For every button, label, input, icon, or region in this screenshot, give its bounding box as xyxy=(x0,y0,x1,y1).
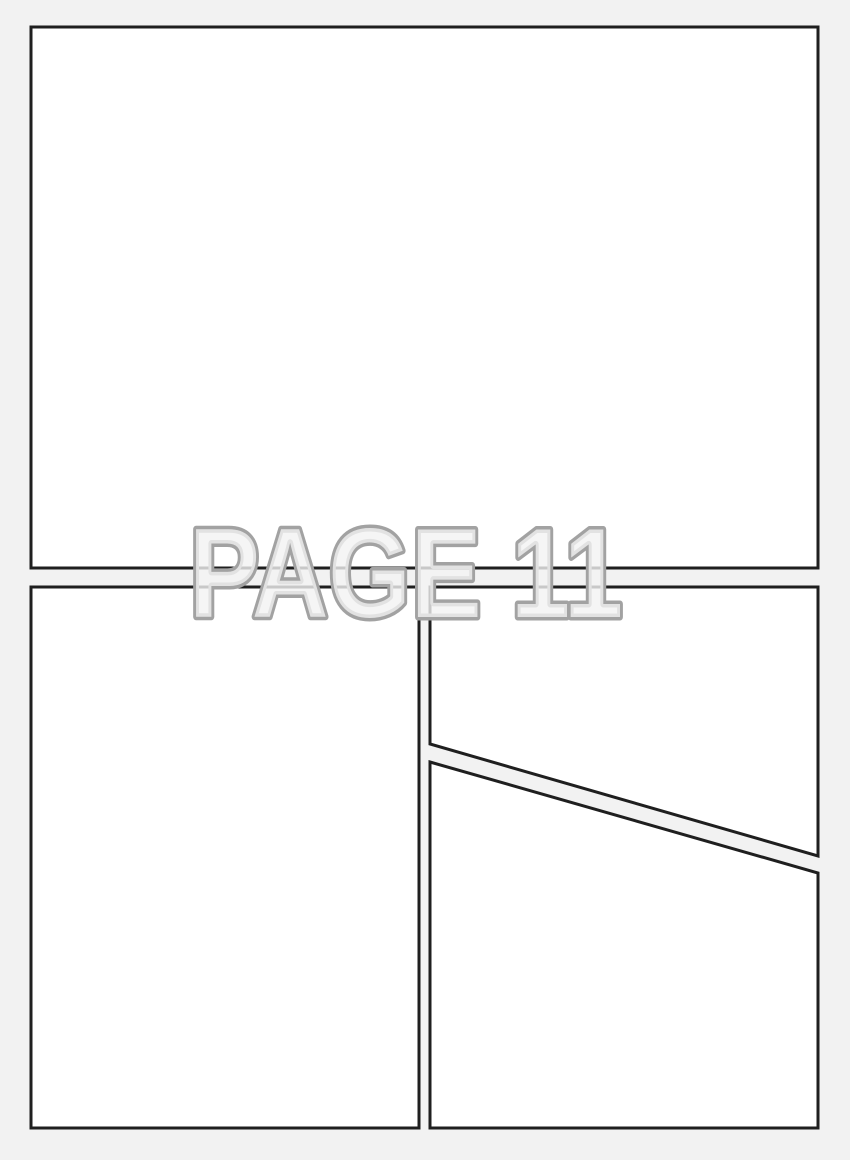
panel-bottom-left xyxy=(31,587,419,1128)
comic-page-template: PAGE 11 xyxy=(0,0,850,1160)
panel-top xyxy=(31,27,818,568)
page-title: PAGE 11 xyxy=(189,502,623,644)
page-canvas: PAGE 11 xyxy=(0,0,850,1160)
